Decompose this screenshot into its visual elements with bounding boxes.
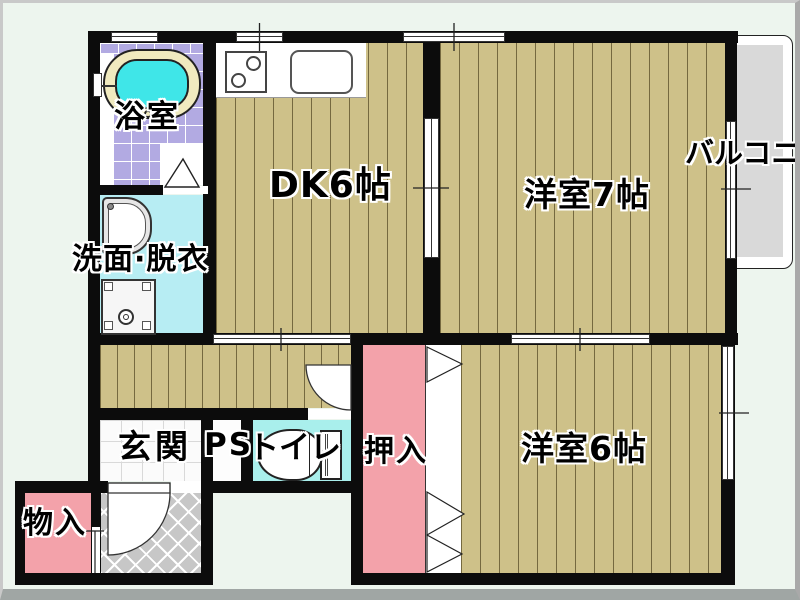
washing-machine-tab [142,321,151,330]
doorway-gap-storage [92,527,100,573]
wall-segment [351,573,735,585]
doorway-gap-toilet [308,409,351,419]
wall-segment [201,493,213,585]
kitchen-stove [225,51,267,93]
window-symbol-bath [111,32,158,42]
wall-segment [88,408,308,420]
room-label-pipe-space: PS [204,428,253,462]
washing-machine-tab [104,321,113,330]
wall-segment [88,185,163,195]
washing-machine-tab [104,282,113,291]
window-symbol-west6 [722,346,734,480]
wall-segment [351,333,363,585]
room-label-closet: 押入 [364,435,428,468]
room-label-toilet: トイレ [248,431,341,465]
floor-plan: 浴室 洗面·脱衣 DK6帖 洋室7帖 バルコニー 玄関 PS トイレ 押入 洋室… [0,0,800,600]
room-label-west7: 洋室7帖 [524,177,650,213]
window-symbol-west7 [403,32,505,42]
room-label-balcony: バルコニー [685,138,800,170]
room-label-dk: DK6帖 [269,166,392,206]
window-symbol-dk [236,32,283,42]
sliding-door-symbol-dk-hall [213,334,351,344]
closet-door-strip [425,345,462,573]
hallway-floor [100,345,351,408]
wall-segment [201,481,363,493]
wall-segment [88,481,108,493]
wall-segment [15,481,91,493]
stove-burner-icon [231,73,246,88]
kitchen-sink [290,50,353,94]
room-label-west6: 洋室6帖 [521,431,647,467]
room-label-washroom: 洗面·脱衣 [72,243,208,276]
room-label-bath: 浴室 [114,100,180,134]
sliding-door-symbol-dk-west7 [424,118,439,258]
room-label-storage: 物入 [23,507,87,540]
entrance-porch-floor [100,493,201,573]
sliding-door-symbol-west7-west6 [511,334,650,344]
washbasin-faucet-icon [107,203,114,210]
stove-burner-icon [246,56,261,71]
entrance-porch-opening [171,481,201,493]
washing-machine-drain-inner [123,314,129,320]
washing-machine-tab [142,282,151,291]
bath-door-zone [160,143,203,185]
wall-segment [15,573,213,585]
room-label-entrance: 玄関 [118,429,192,465]
doorway-gap-bath [163,186,208,194]
bath-faucet-spout [101,85,117,87]
